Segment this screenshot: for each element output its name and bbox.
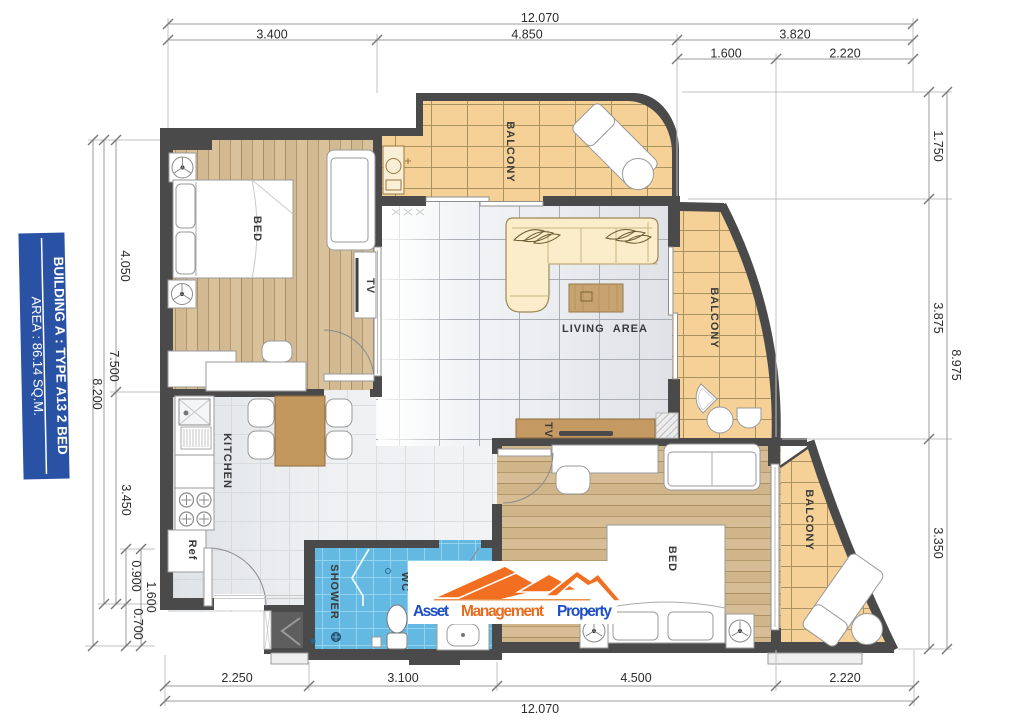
svg-text:SHOWER: SHOWER bbox=[328, 564, 340, 620]
svg-text:TV: TV bbox=[364, 278, 376, 294]
svg-text:0.900: 0.900 bbox=[129, 560, 143, 591]
svg-text:0.700: 0.700 bbox=[131, 608, 145, 639]
svg-text:12.070: 12.070 bbox=[521, 11, 559, 25]
svg-text:4.850: 4.850 bbox=[511, 28, 542, 42]
svg-text:8.975: 8.975 bbox=[949, 349, 963, 380]
svg-text:4.500: 4.500 bbox=[620, 671, 651, 685]
svg-text:BALCONY: BALCONY bbox=[803, 489, 815, 550]
svg-text:BALCONY: BALCONY bbox=[504, 121, 516, 182]
svg-text:BED: BED bbox=[666, 546, 678, 572]
svg-text:Asset: Asset bbox=[413, 603, 449, 620]
svg-text:1.600: 1.600 bbox=[710, 47, 741, 61]
svg-text:Management: Management bbox=[461, 603, 544, 620]
svg-text:7.500: 7.500 bbox=[107, 350, 121, 381]
svg-text:2.220: 2.220 bbox=[829, 671, 860, 685]
svg-text:2.220: 2.220 bbox=[829, 47, 860, 61]
svg-text:LIVING AREA: LIVING AREA bbox=[562, 323, 648, 335]
svg-text:3.450: 3.450 bbox=[119, 484, 133, 515]
svg-text:BALCONY: BALCONY bbox=[708, 287, 720, 348]
svg-text:1.600: 1.600 bbox=[144, 581, 158, 612]
svg-text:8.200: 8.200 bbox=[90, 378, 104, 409]
svg-text:1.750: 1.750 bbox=[931, 130, 945, 161]
svg-text:BED: BED bbox=[251, 216, 263, 242]
svg-text:Property: Property bbox=[557, 603, 612, 620]
svg-text:3.820: 3.820 bbox=[779, 28, 810, 42]
svg-text:AREA : 86.14 SQ.M.: AREA : 86.14 SQ.M. bbox=[29, 296, 46, 416]
svg-text:12.070: 12.070 bbox=[521, 702, 559, 716]
svg-text:3.875: 3.875 bbox=[931, 302, 945, 333]
svg-text:Ref: Ref bbox=[186, 540, 198, 561]
svg-text:3.400: 3.400 bbox=[256, 28, 287, 42]
svg-text:3.100: 3.100 bbox=[387, 671, 418, 685]
svg-text:4.050: 4.050 bbox=[118, 250, 132, 281]
svg-text:KITCHEN: KITCHEN bbox=[221, 433, 233, 489]
svg-text:3.350: 3.350 bbox=[931, 527, 945, 558]
svg-text:2.250: 2.250 bbox=[221, 671, 252, 685]
svg-text:TV: TV bbox=[542, 422, 554, 438]
